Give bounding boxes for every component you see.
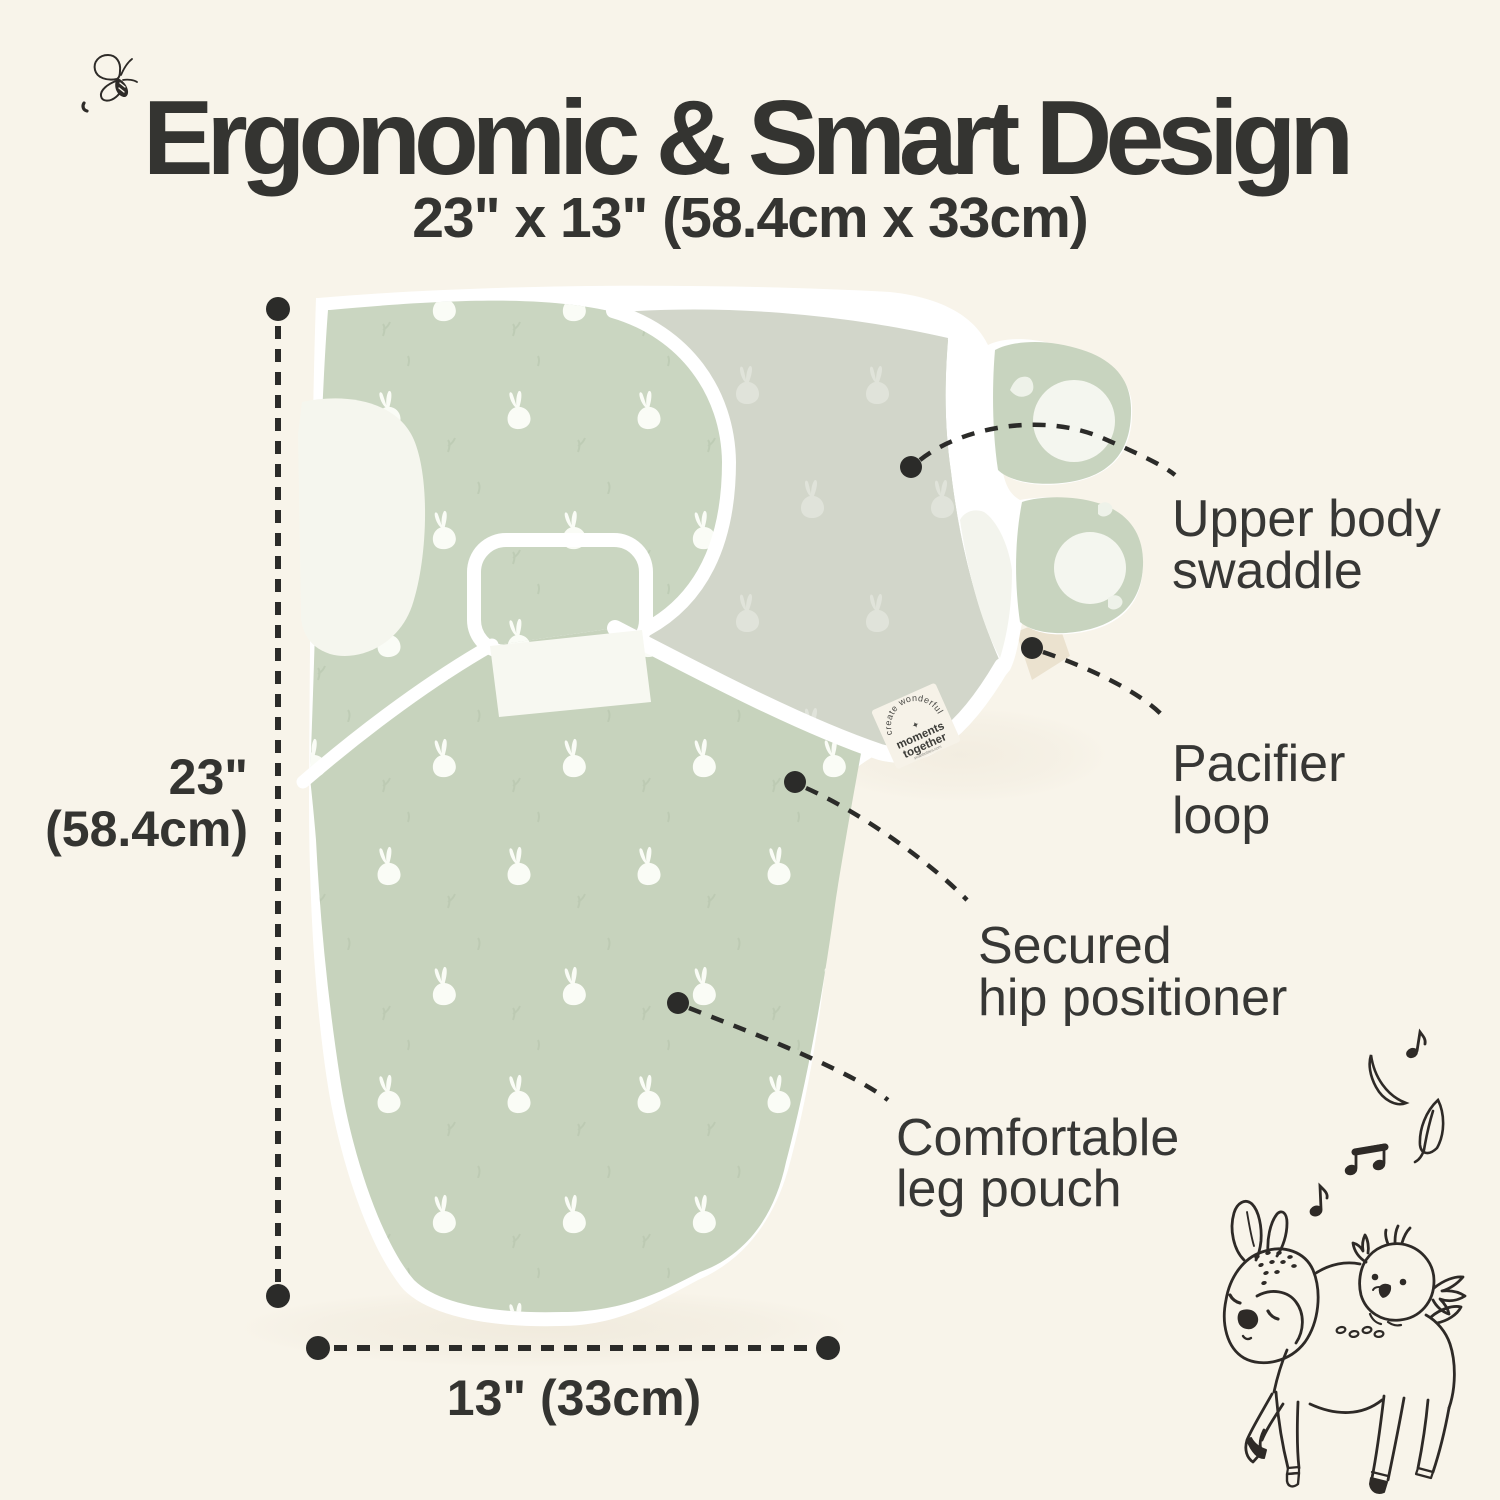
svg-text:23": 23" [169, 749, 248, 805]
svg-text:Upper body: Upper body [1172, 490, 1441, 548]
svg-text:Ergonomic & Smart Design: Ergonomic & Smart Design [143, 79, 1349, 197]
svg-text:Secured: Secured [978, 917, 1172, 975]
svg-text:23" x 13" (58.4cm x 33cm): 23" x 13" (58.4cm x 33cm) [412, 186, 1088, 250]
svg-text:leg pouch: leg pouch [896, 1160, 1122, 1218]
svg-text:Pacifier: Pacifier [1172, 735, 1345, 793]
svg-text:13" (33cm): 13" (33cm) [447, 1370, 701, 1426]
svg-text:hip positioner: hip positioner [978, 969, 1287, 1027]
svg-text:loop: loop [1172, 787, 1270, 845]
svg-text:Comfortable: Comfortable [896, 1109, 1179, 1167]
svg-text:(58.4cm): (58.4cm) [45, 801, 248, 857]
svg-text:swaddle: swaddle [1172, 542, 1363, 600]
